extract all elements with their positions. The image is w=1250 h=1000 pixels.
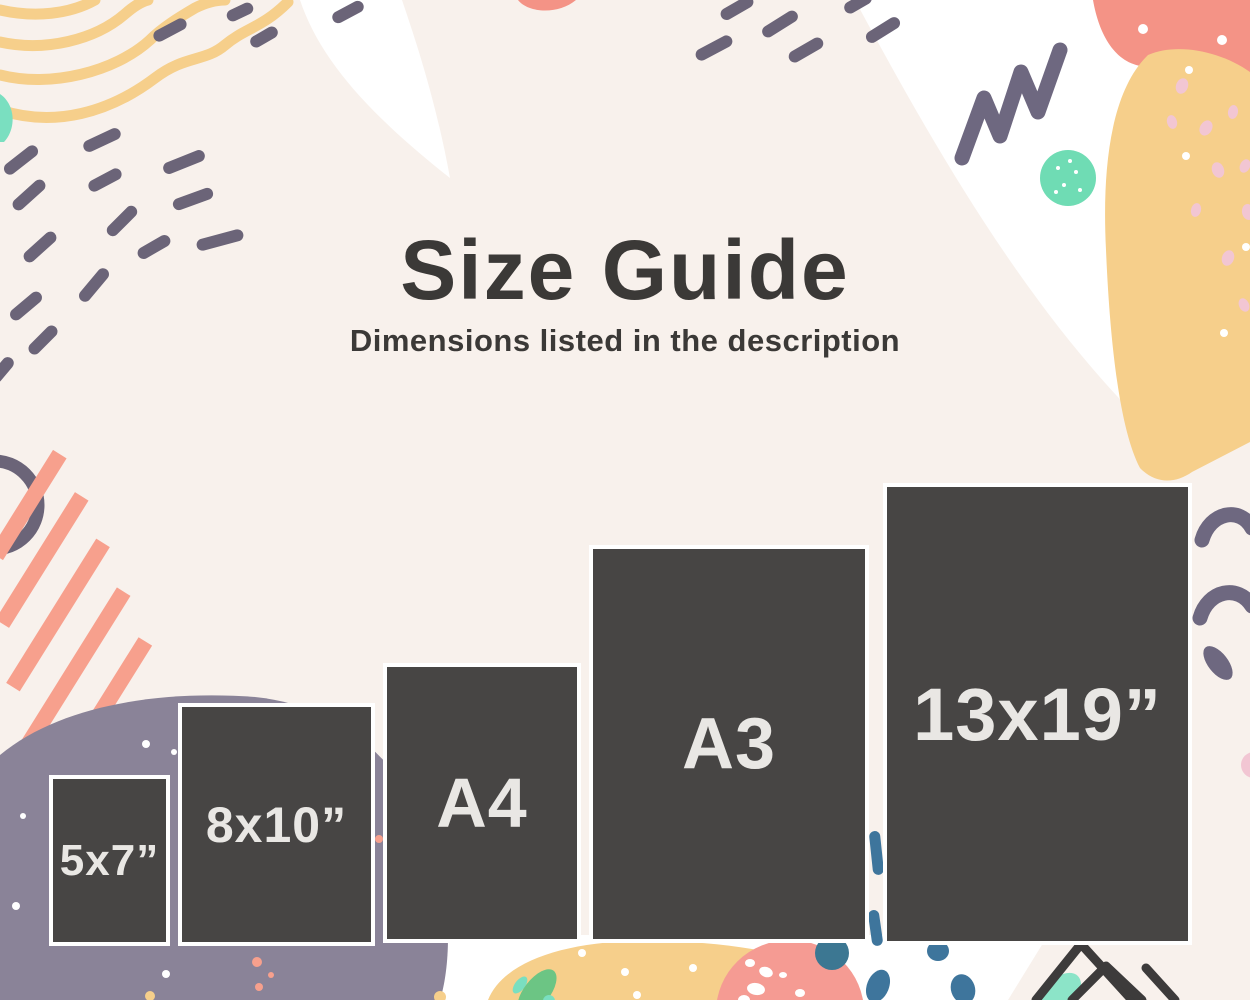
- print-size-13x19-label: 13x19”: [913, 672, 1162, 757]
- print-size-8x10: 8x10”: [178, 703, 375, 946]
- size-guide-image: Size Guide Dimensions listed in the desc…: [0, 0, 1250, 1000]
- print-size-5x7-label: 5x7”: [60, 836, 159, 886]
- print-size-5x7: 5x7”: [49, 775, 170, 946]
- page-title: Size Guide: [0, 228, 1250, 312]
- print-size-13x19: 13x19”: [883, 483, 1192, 945]
- print-size-8x10-label: 8x10”: [206, 796, 347, 854]
- teal-dotted-circle: [1040, 150, 1096, 206]
- page-subtitle: Dimensions listed in the description: [0, 324, 1250, 358]
- print-size-a3-label: A3: [682, 703, 776, 785]
- print-size-a4: A4: [383, 663, 581, 943]
- print-size-a3: A3: [589, 545, 869, 943]
- heading-block: Size Guide Dimensions listed in the desc…: [0, 228, 1250, 358]
- print-size-a4-label: A4: [436, 763, 527, 843]
